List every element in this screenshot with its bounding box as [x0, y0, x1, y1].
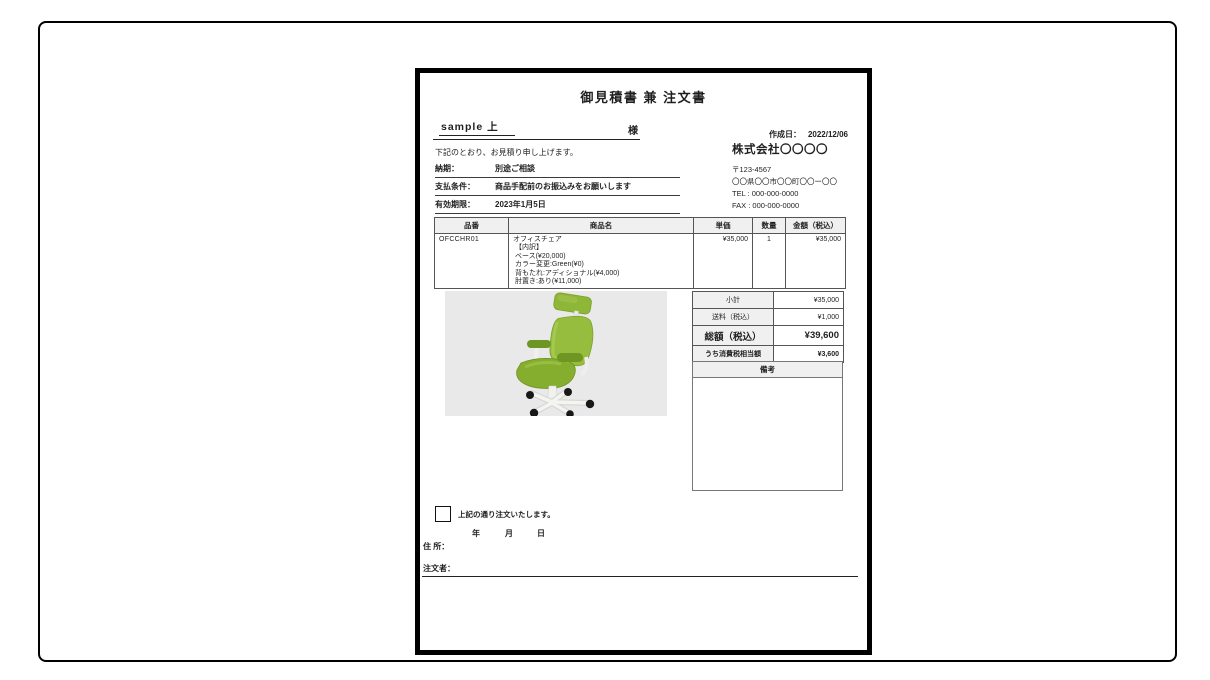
subtotal-label: 小計	[693, 292, 774, 309]
subtotal-row: 小計 ¥35,000	[693, 292, 844, 309]
term-row-delivery: 納期： 別途ご相談	[435, 160, 680, 178]
company-address: 〇〇県〇〇市〇〇町〇〇ー〇〇	[732, 176, 862, 188]
page-title: 御見積書 兼 注文書	[420, 87, 867, 106]
order-checkbox[interactable]	[435, 506, 451, 522]
remarks-box: 備考	[692, 361, 843, 491]
remarks-body	[693, 378, 842, 491]
item-name: オフィスチェア 【内訳】 ベース(¥20,000) カラー変更:Green(¥0…	[509, 234, 694, 289]
item-code: OFCCHR01	[435, 234, 509, 289]
year-label: 年	[472, 528, 480, 539]
items-table: 品番 商品名 単価 数量 金額（税込） OFCCHR01 オフィスチェア 【内訳…	[434, 217, 846, 289]
orderer-address-label: 住 所：	[423, 541, 449, 552]
shipping-label: 送料（税込）	[693, 309, 774, 326]
honorific-label: 様	[628, 122, 638, 137]
shipping-row: 送料（税込） ¥1,000	[693, 309, 844, 326]
term-label: 納期：	[435, 163, 495, 174]
order-checkbox-label: 上記の通り注文いたします。	[458, 509, 555, 520]
document-page: 御見積書 兼 注文書 sample 上 様 作成日：2022/12/06 下記の…	[415, 68, 872, 655]
term-value: 商品手配前のお振込みをお願いします	[495, 181, 631, 192]
grand-total-value: ¥39,600	[774, 326, 844, 346]
created-date-label: 作成日：	[769, 130, 801, 139]
grand-total-label: 総額（税込）	[693, 326, 774, 346]
greeting-text: 下記のとおり、お見積り申し上げます。	[435, 147, 578, 158]
term-value: 別途ご相談	[495, 163, 535, 174]
col-header-name: 商品名	[509, 218, 694, 234]
customer-row: sample 上 様	[433, 117, 640, 140]
grand-total-row: 総額（税込） ¥39,600	[693, 326, 844, 346]
company-tel: TEL : 000-000-0000	[732, 188, 862, 200]
orderer-name-label: 注文者：	[423, 563, 455, 574]
term-row-expiry: 有効期限： 2023年1月5日	[435, 196, 680, 214]
term-label: 有効期限：	[435, 199, 495, 210]
customer-name: sample 上	[439, 119, 515, 136]
created-date-row: 作成日：2022/12/06	[769, 129, 848, 140]
tax-row: うち消費税相当額 ¥3,600	[693, 346, 844, 363]
col-header-amount: 金額（税込）	[786, 218, 846, 234]
office-chair-illustration	[445, 291, 667, 416]
signature-line	[422, 576, 858, 577]
items-header-row: 品番 商品名 単価 数量 金額（税込）	[435, 218, 846, 234]
col-header-code: 品番	[435, 218, 509, 234]
tax-label: うち消費税相当額	[693, 346, 774, 363]
col-header-quantity: 数量	[753, 218, 786, 234]
term-row-payment: 支払条件： 商品手配前のお振込みをお願いします	[435, 178, 680, 196]
company-name: 株式会社〇〇〇〇	[732, 141, 862, 157]
item-unit-price: ¥35,000	[694, 234, 753, 289]
subtotal-value: ¥35,000	[774, 292, 844, 309]
totals-table: 小計 ¥35,000 送料（税込） ¥1,000 総額（税込） ¥39,600 …	[692, 291, 844, 363]
day-label: 日	[537, 528, 545, 539]
item-row: OFCCHR01 オフィスチェア 【内訳】 ベース(¥20,000) カラー変更…	[435, 234, 846, 289]
company-block: 株式会社〇〇〇〇 〒123-4567 〇〇県〇〇市〇〇町〇〇ー〇〇 TEL : …	[732, 141, 862, 212]
company-fax: FAX : 000-000-0000	[732, 200, 862, 212]
term-label: 支払条件：	[435, 181, 495, 192]
tax-value: ¥3,600	[774, 346, 844, 363]
month-label: 月	[505, 528, 513, 539]
terms-list: 納期： 別途ご相談 支払条件： 商品手配前のお振込みをお願いします 有効期限： …	[435, 160, 680, 214]
product-photo	[445, 291, 667, 416]
term-value: 2023年1月5日	[495, 199, 546, 210]
col-header-unit-price: 単価	[694, 218, 753, 234]
viewer-frame: 御見積書 兼 注文書 sample 上 様 作成日：2022/12/06 下記の…	[38, 21, 1177, 662]
shipping-value: ¥1,000	[774, 309, 844, 326]
item-amount: ¥35,000	[786, 234, 846, 289]
item-quantity: 1	[753, 234, 786, 289]
remarks-header: 備考	[693, 362, 842, 378]
created-date-value: 2022/12/06	[808, 130, 848, 139]
company-postal: 〒123-4567	[732, 164, 862, 176]
